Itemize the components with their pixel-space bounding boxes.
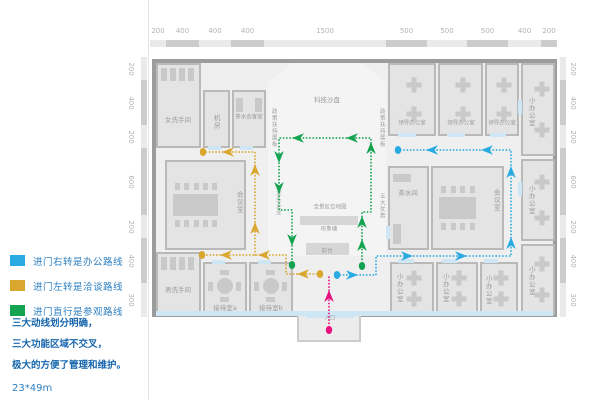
policy-wall-left-label: 政策扶持展板 — [270, 109, 276, 148]
meeting-room-right-label: 会议室 — [493, 189, 500, 212]
table — [263, 278, 279, 294]
small-office-right-3 — [521, 244, 555, 315]
floor-plan: 女洗手间机房茶水会客室领导办公室领导办公室领导办公室小办公室小办公室小办公室茶水… — [0, 0, 600, 400]
door-gap-8 — [240, 146, 253, 150]
chair — [220, 297, 229, 302]
chair — [451, 186, 456, 193]
small-office-right-2 — [521, 159, 555, 241]
desk-icon — [493, 270, 508, 285]
tea-room-label: 茶水间 — [398, 190, 418, 197]
five-advantages-label: 五大优势 — [378, 193, 384, 219]
chair — [184, 220, 189, 227]
door-gap-3 — [490, 133, 506, 137]
chair — [175, 183, 180, 190]
floor-plan-page: 进门右转是办公路线 进门左转是洽谈路线 进门直行是参观路线 三大动线划分明确， … — [0, 0, 600, 400]
desk-icon — [496, 77, 511, 92]
chair — [194, 220, 199, 227]
chair — [460, 223, 465, 230]
table — [217, 278, 233, 294]
leader-office-1-label: 领导办公室 — [398, 121, 426, 127]
chair — [212, 220, 217, 227]
chair — [175, 220, 180, 227]
toilet-stall — [188, 68, 194, 81]
chair — [236, 282, 241, 291]
chair — [441, 223, 446, 230]
chair — [203, 183, 208, 190]
men-restroom-label: 男洗手间 — [165, 287, 191, 294]
desk-icon — [535, 211, 550, 226]
conference-table — [173, 194, 218, 216]
chair — [212, 183, 217, 190]
desk-icon — [407, 292, 422, 307]
door-gap-5 — [442, 259, 458, 263]
chair — [282, 282, 287, 291]
toilet-stall — [179, 257, 185, 270]
desk-icon — [407, 77, 422, 92]
desk-icon — [407, 270, 422, 285]
small-office-right-1-label: 小办公室 — [528, 97, 535, 127]
small-office-right-3-label: 小办公室 — [528, 266, 535, 296]
panorama-map-wall — [300, 216, 358, 225]
front-desk-label: 前台 — [321, 249, 332, 255]
toilet-stall — [179, 68, 185, 81]
door-gap-12 — [518, 182, 522, 196]
desk-icon — [455, 77, 470, 92]
door-gap-7 — [208, 146, 221, 150]
tea-reception-room-label: 茶水会客室 — [235, 115, 263, 121]
desk-icon — [493, 292, 508, 307]
chair — [208, 282, 213, 291]
chair — [470, 186, 475, 193]
desk-icon — [452, 270, 467, 285]
meeting-room-left-label: 会议室 — [236, 191, 243, 214]
chair — [441, 186, 446, 193]
conference-table — [439, 197, 476, 219]
desk-icon — [535, 288, 550, 303]
small-office-bottom-1-label: 小办公室 — [396, 273, 403, 303]
glass-facade — [156, 311, 553, 316]
desk-icon — [535, 174, 550, 189]
entrance-label: 入口 — [324, 316, 335, 322]
tech-sandtable-label: 科技沙盘 — [314, 97, 340, 104]
toilet-stall — [188, 257, 194, 270]
server-room-label: 机房 — [213, 115, 220, 130]
door-gap-13 — [386, 226, 390, 239]
small-office-right-1 — [521, 63, 555, 156]
women-restroom-label: 女洗手间 — [165, 117, 191, 124]
policy-wall-right-label: 政策扶持展板 — [378, 109, 384, 148]
door-gap-1 — [398, 133, 416, 137]
door-gap-4 — [398, 259, 414, 263]
chair — [460, 186, 465, 193]
chair — [266, 270, 275, 275]
panorama-map-label: 全景区位地图 — [313, 205, 346, 211]
counter — [393, 174, 411, 182]
door-gap-2 — [447, 133, 465, 137]
desk-icon — [535, 122, 550, 137]
chair — [220, 270, 229, 275]
sofa — [255, 98, 262, 112]
toilet-stall — [161, 68, 167, 81]
door-gap-6 — [484, 259, 498, 263]
door-gap-9 — [212, 260, 225, 264]
desk-icon — [535, 82, 550, 97]
door-gap-10 — [258, 260, 271, 264]
leading-enterprise-label: 龙头企业 — [274, 190, 280, 216]
chair — [184, 183, 189, 190]
image-wall-label: 形象墙 — [321, 227, 338, 233]
chair — [266, 297, 275, 302]
leader-office-2-label: 领导办公室 — [447, 121, 475, 127]
toilet-stall — [170, 257, 176, 270]
chair — [203, 220, 208, 227]
small-office-bottom-2-label: 小办公室 — [442, 273, 449, 303]
chair — [254, 282, 259, 291]
small-office-right-2-label: 小办公室 — [528, 185, 535, 215]
sofa — [236, 98, 243, 112]
counter — [393, 224, 401, 244]
chair — [194, 183, 199, 190]
chair — [470, 223, 475, 230]
door-gap-11 — [518, 100, 522, 114]
small-office-bottom-3-label: 小办公室 — [485, 275, 492, 305]
chair — [451, 223, 456, 230]
leader-office-3-label: 领导办公室 — [488, 121, 516, 127]
desk-icon — [535, 256, 550, 271]
toilet-stall — [161, 257, 167, 270]
desk-icon — [452, 292, 467, 307]
toilet-stall — [170, 68, 176, 81]
